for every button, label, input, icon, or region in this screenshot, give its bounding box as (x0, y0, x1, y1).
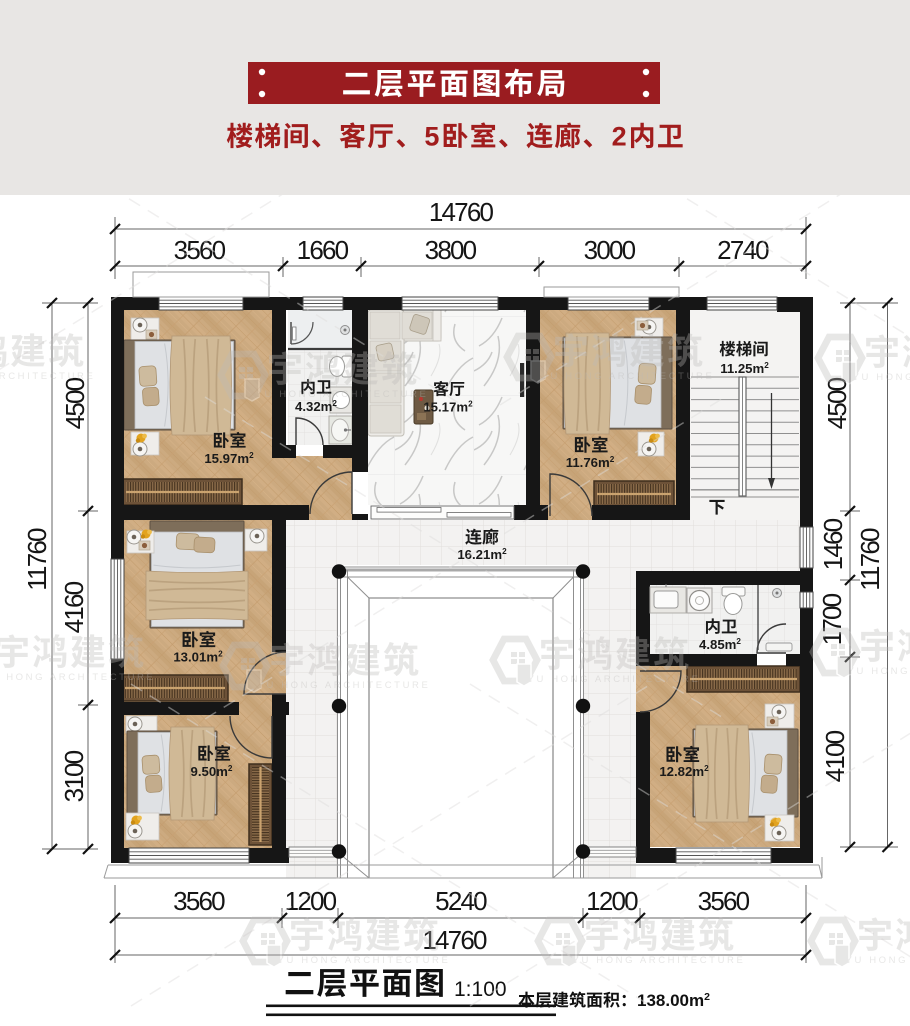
svg-text:11760: 11760 (855, 528, 885, 591)
svg-text:YU HONG ARCHITECTURE: YU HONG ARCHITECTURE (846, 955, 910, 966)
svg-text:5: 5 (424, 122, 439, 152)
svg-text:1200: 1200 (285, 886, 337, 916)
svg-text:YU HONG ARCHITECTURE: YU HONG ARCHITECTURE (542, 371, 715, 382)
svg-text:11760: 11760 (22, 528, 52, 591)
svg-text:YU HONG ARCHITECTURE: YU HONG ARCHITECTURE (256, 389, 429, 400)
svg-text:4500: 4500 (822, 377, 852, 429)
svg-text:3100: 3100 (59, 750, 89, 802)
svg-text:11.25m2: 11.25m2 (720, 361, 769, 376)
svg-text:YU HONG ARCHITECTURE: YU HONG ARCHITECTURE (848, 666, 910, 677)
svg-text:14760: 14760 (429, 197, 494, 227)
svg-text:1460: 1460 (818, 518, 848, 570)
svg-text:3560: 3560 (173, 886, 225, 916)
svg-text:138.00m2: 138.00m2 (637, 991, 710, 1010)
svg-text:12.82m2: 12.82m2 (659, 764, 709, 779)
svg-text:3000: 3000 (584, 235, 636, 265)
svg-text:4.32m2: 4.32m2 (295, 399, 337, 414)
svg-text:11.76m2: 11.76m2 (566, 455, 615, 470)
svg-text:1660: 1660 (297, 235, 349, 265)
svg-text:9.50m2: 9.50m2 (191, 764, 233, 779)
svg-text:5240: 5240 (435, 886, 487, 916)
svg-text:3560: 3560 (698, 886, 750, 916)
svg-text:1:100: 1:100 (454, 978, 507, 1001)
svg-text:YU HONG ARCHITECTURE: YU HONG ARCHITECTURE (258, 680, 431, 691)
svg-text:15.97m2: 15.97m2 (204, 451, 254, 466)
svg-text:YU HONG ARCHITECTURE: YU HONG ARCHITECTURE (0, 672, 155, 683)
svg-text:4160: 4160 (59, 581, 89, 633)
svg-text:YU HONG ARCHITECTURE: YU HONG ARCHITECTURE (528, 674, 701, 685)
svg-text:YU HONG ARCHITECTURE: YU HONG ARCHITECTURE (853, 372, 910, 383)
svg-text:YU HONG ARCHITECTURE: YU HONG ARCHITECTURE (278, 955, 451, 966)
svg-text:13.01m2: 13.01m2 (173, 649, 223, 664)
svg-text:2740: 2740 (717, 235, 769, 265)
svg-text:4500: 4500 (60, 377, 90, 429)
svg-text:3800: 3800 (425, 235, 477, 265)
svg-text:YU HONG ARCHITECTURE: YU HONG ARCHITECTURE (573, 955, 746, 966)
svg-text:15.17m2: 15.17m2 (423, 399, 473, 414)
svg-text:1200: 1200 (586, 886, 638, 916)
svg-text:YU HONG ARCHITECTURE: YU HONG ARCHITECTURE (0, 371, 95, 382)
svg-text:3560: 3560 (174, 235, 226, 265)
svg-text:2: 2 (612, 122, 627, 152)
svg-text:4100: 4100 (820, 730, 850, 782)
svg-text:4.85m2: 4.85m2 (699, 637, 741, 652)
svg-text:16.21m2: 16.21m2 (457, 547, 507, 562)
